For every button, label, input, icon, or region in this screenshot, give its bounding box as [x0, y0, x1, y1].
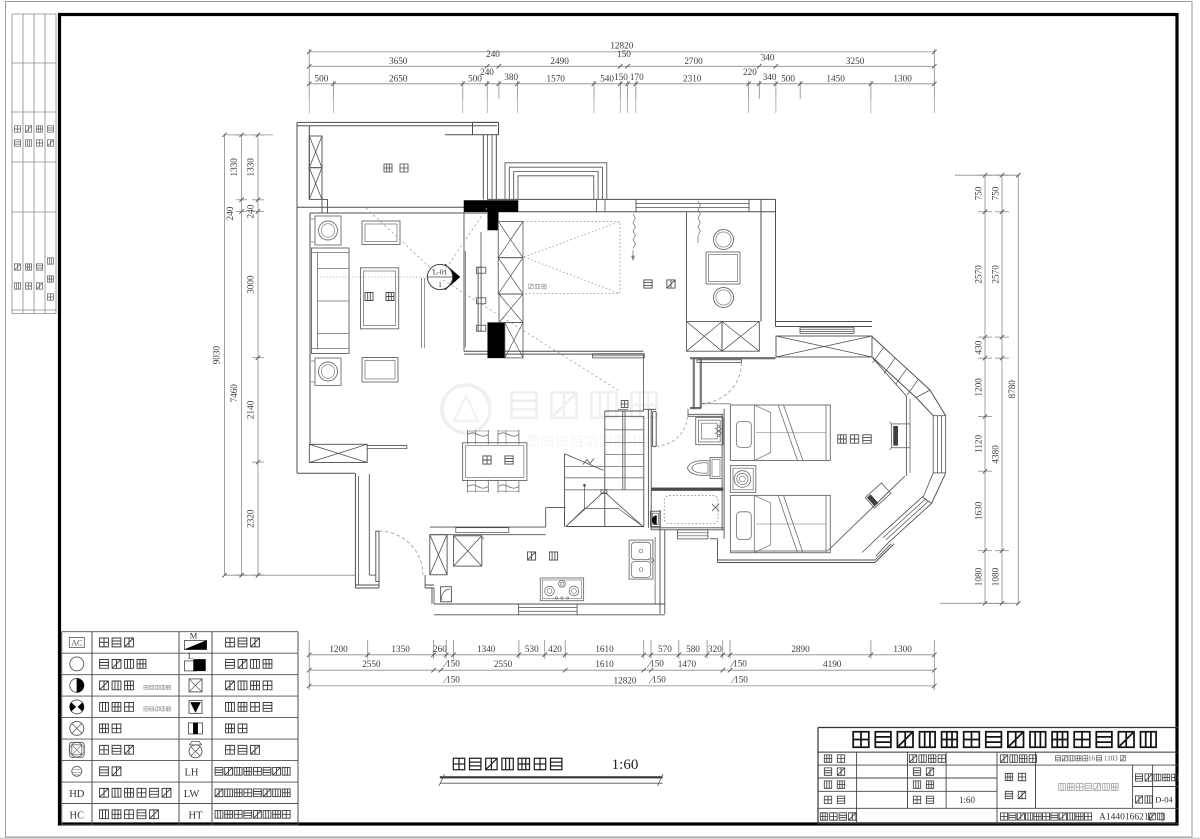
svg-text:2700: 2700	[684, 56, 703, 66]
svg-text:4380: 4380	[991, 445, 1001, 464]
svg-text:3250: 3250	[846, 56, 865, 66]
svg-text:M: M	[190, 630, 198, 640]
svg-text:340: 340	[763, 72, 777, 82]
svg-text:1610: 1610	[595, 644, 614, 654]
svg-text:8780: 8780	[1007, 380, 1017, 399]
svg-text:500: 500	[315, 73, 329, 83]
svg-text:LH: LH	[185, 767, 199, 778]
svg-text:150: 150	[650, 659, 664, 669]
svg-text:2570: 2570	[991, 265, 1001, 284]
svg-text:150: 150	[446, 659, 460, 669]
svg-text:380: 380	[504, 72, 518, 82]
svg-text:1610: 1610	[595, 659, 614, 669]
svg-text:1200: 1200	[974, 378, 984, 397]
svg-text:4190: 4190	[823, 659, 842, 669]
svg-text:1300: 1300	[893, 73, 912, 83]
svg-text:150: 150	[734, 674, 748, 684]
svg-text:1330: 1330	[229, 158, 239, 177]
svg-text:1340: 1340	[477, 644, 496, 654]
svg-text:1:60: 1:60	[612, 757, 639, 773]
svg-text:HD: HD	[69, 789, 85, 800]
svg-text:2140: 2140	[246, 400, 256, 419]
svg-text:2890: 2890	[791, 644, 810, 654]
svg-text:2550: 2550	[362, 659, 381, 669]
svg-text:240: 240	[246, 204, 256, 218]
svg-text:2310: 2310	[683, 73, 702, 83]
svg-text:150: 150	[617, 49, 631, 59]
svg-text:12820: 12820	[614, 676, 637, 686]
svg-text:500: 500	[781, 73, 795, 83]
svg-text:220: 220	[743, 67, 757, 77]
svg-text:9030: 9030	[212, 346, 222, 365]
svg-text:240: 240	[225, 206, 235, 220]
svg-text:2490: 2490	[550, 56, 569, 66]
svg-text:420: 420	[548, 644, 562, 654]
svg-text:1080: 1080	[991, 567, 1001, 586]
svg-text:A144016621(: A144016621(	[1099, 812, 1152, 823]
svg-text:1:60: 1:60	[959, 795, 976, 805]
svg-text:D-04: D-04	[1155, 795, 1173, 805]
svg-text:): )	[1162, 812, 1165, 823]
svg-text:1570: 1570	[547, 73, 566, 83]
svg-text:340: 340	[761, 52, 775, 62]
svg-text:1120: 1120	[974, 434, 984, 452]
svg-text:260: 260	[433, 644, 447, 654]
svg-text:580: 580	[686, 644, 700, 654]
svg-text:150: 150	[652, 674, 666, 684]
svg-text:L-01: L-01	[433, 268, 448, 277]
svg-text:2550: 2550	[494, 659, 513, 669]
svg-text:2570: 2570	[974, 265, 984, 284]
svg-text:3650: 3650	[389, 56, 408, 66]
svg-text:1630: 1630	[974, 501, 984, 520]
svg-text:150: 150	[614, 72, 628, 82]
svg-text:1350: 1350	[391, 644, 410, 654]
svg-text:1103: 1103	[1104, 755, 1118, 763]
svg-text:240: 240	[480, 67, 494, 77]
svg-text:HT: HT	[189, 810, 204, 821]
svg-text:430: 430	[974, 340, 984, 354]
svg-text:750: 750	[974, 186, 984, 200]
svg-text:3000: 3000	[246, 275, 256, 294]
svg-text:150: 150	[733, 659, 747, 669]
svg-text:1330: 1330	[246, 158, 256, 177]
svg-text:2650: 2650	[389, 73, 408, 83]
svg-text:540: 540	[600, 73, 614, 83]
svg-text:530: 530	[525, 644, 539, 654]
svg-text:1300: 1300	[893, 644, 912, 654]
svg-text:LW: LW	[184, 789, 200, 800]
svg-text:1200: 1200	[329, 644, 348, 654]
svg-text:L: L	[188, 651, 193, 661]
svg-text:150: 150	[446, 674, 460, 684]
svg-text:16: 16	[1088, 755, 1096, 763]
svg-text:570: 570	[658, 644, 672, 654]
svg-text:170: 170	[630, 72, 644, 82]
svg-text:2320: 2320	[246, 509, 256, 528]
svg-text:1470: 1470	[678, 659, 697, 669]
svg-text:750: 750	[991, 186, 1001, 200]
svg-text:1450: 1450	[826, 73, 845, 83]
svg-text:1: 1	[438, 280, 442, 289]
svg-text:320: 320	[708, 644, 722, 654]
svg-text:1080: 1080	[974, 567, 984, 586]
svg-text:HC: HC	[70, 810, 85, 821]
svg-text:7460: 7460	[229, 384, 239, 403]
svg-text:AC: AC	[71, 638, 82, 647]
svg-text:240: 240	[486, 49, 500, 59]
